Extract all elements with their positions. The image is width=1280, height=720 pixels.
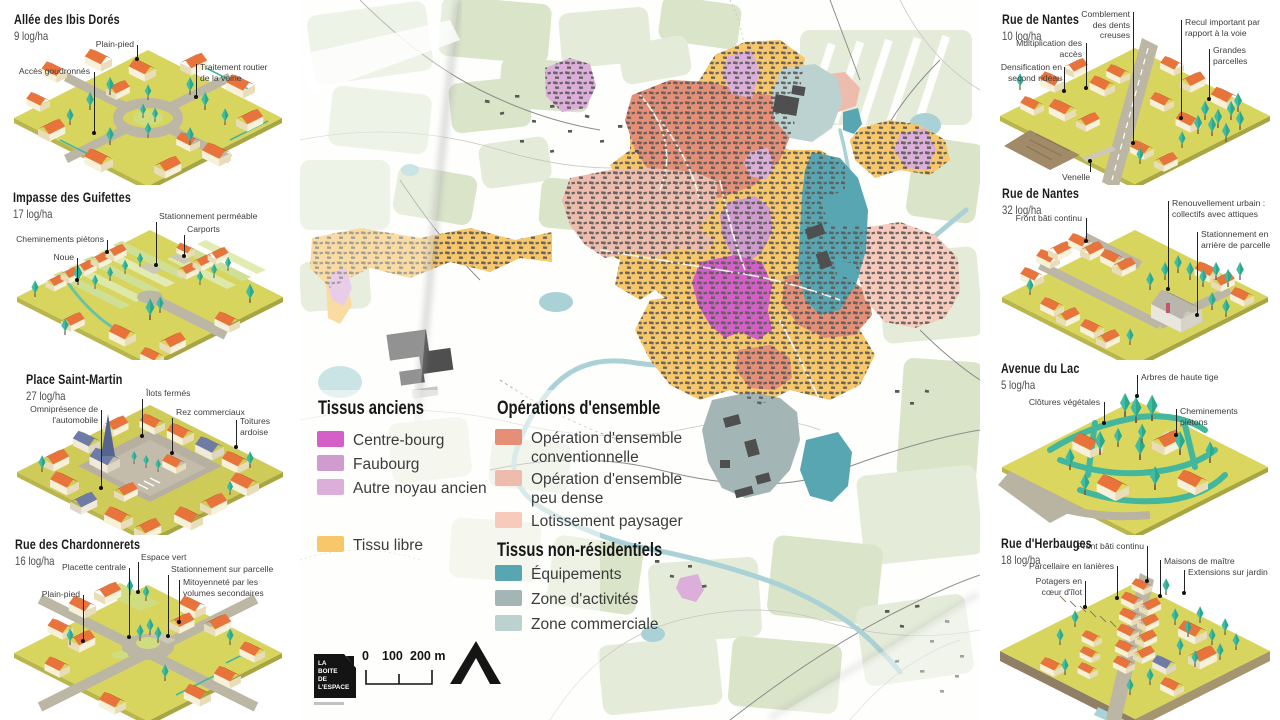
scene-rue-des-chardonnerets (0, 535, 300, 720)
svg-text:LA: LA (318, 660, 327, 667)
svg-text:BOITE: BOITE (318, 668, 338, 675)
scene-rue-de-nantes-32 (990, 185, 1280, 360)
scene-place-saint-martin (0, 360, 300, 535)
infographic-root: LA BOITE DE L'ESPACE 0 100 200 m Tissus … (0, 0, 1280, 720)
scene-allee-des-ibis-dores (0, 0, 300, 185)
scene-impasse-des-guifettes (0, 185, 300, 360)
scene-rue-d-herbauges (990, 535, 1280, 720)
la-boite-de-lespace-logo: LA BOITE DE L'ESPACE (314, 654, 356, 705)
scene-rue-de-nantes-10 (990, 0, 1280, 185)
svg-text:100: 100 (382, 649, 403, 663)
land-use-map: LA BOITE DE L'ESPACE 0 100 200 m (300, 0, 980, 720)
svg-text:200 m: 200 m (410, 649, 445, 663)
svg-text:DE: DE (318, 676, 328, 683)
svg-text:L'ESPACE: L'ESPACE (318, 684, 350, 691)
scene-avenue-du-lac (990, 355, 1280, 535)
svg-text:0: 0 (362, 649, 369, 663)
